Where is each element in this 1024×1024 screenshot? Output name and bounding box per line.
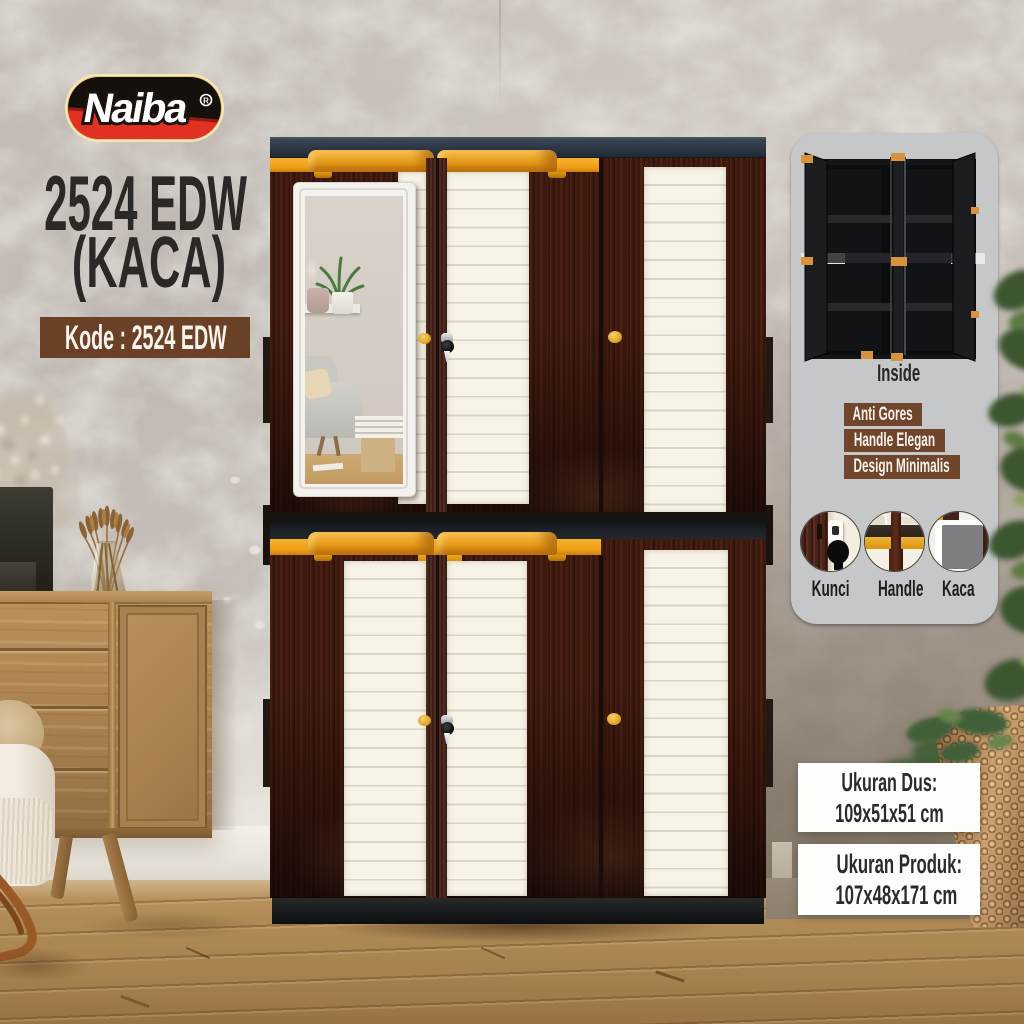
svg-text:Naiba: Naiba (80, 85, 193, 131)
svg-text:R: R (203, 97, 209, 106)
